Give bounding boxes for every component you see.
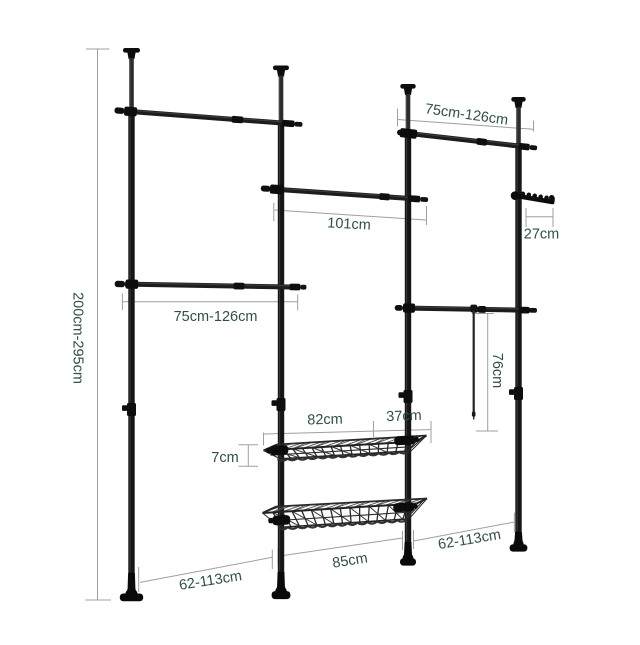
svg-text:75cm-126cm: 75cm-126cm <box>174 309 258 325</box>
svg-text:85cm: 85cm <box>331 550 369 571</box>
svg-text:62-113cm: 62-113cm <box>178 568 243 594</box>
svg-text:101cm: 101cm <box>327 215 371 233</box>
svg-text:7cm: 7cm <box>211 450 238 466</box>
svg-text:76cm: 76cm <box>489 353 505 388</box>
svg-text:82cm: 82cm <box>307 412 343 429</box>
svg-text:37cm: 37cm <box>386 408 422 425</box>
svg-text:27cm: 27cm <box>524 227 559 243</box>
svg-text:200cm-295cm: 200cm-295cm <box>70 292 86 384</box>
